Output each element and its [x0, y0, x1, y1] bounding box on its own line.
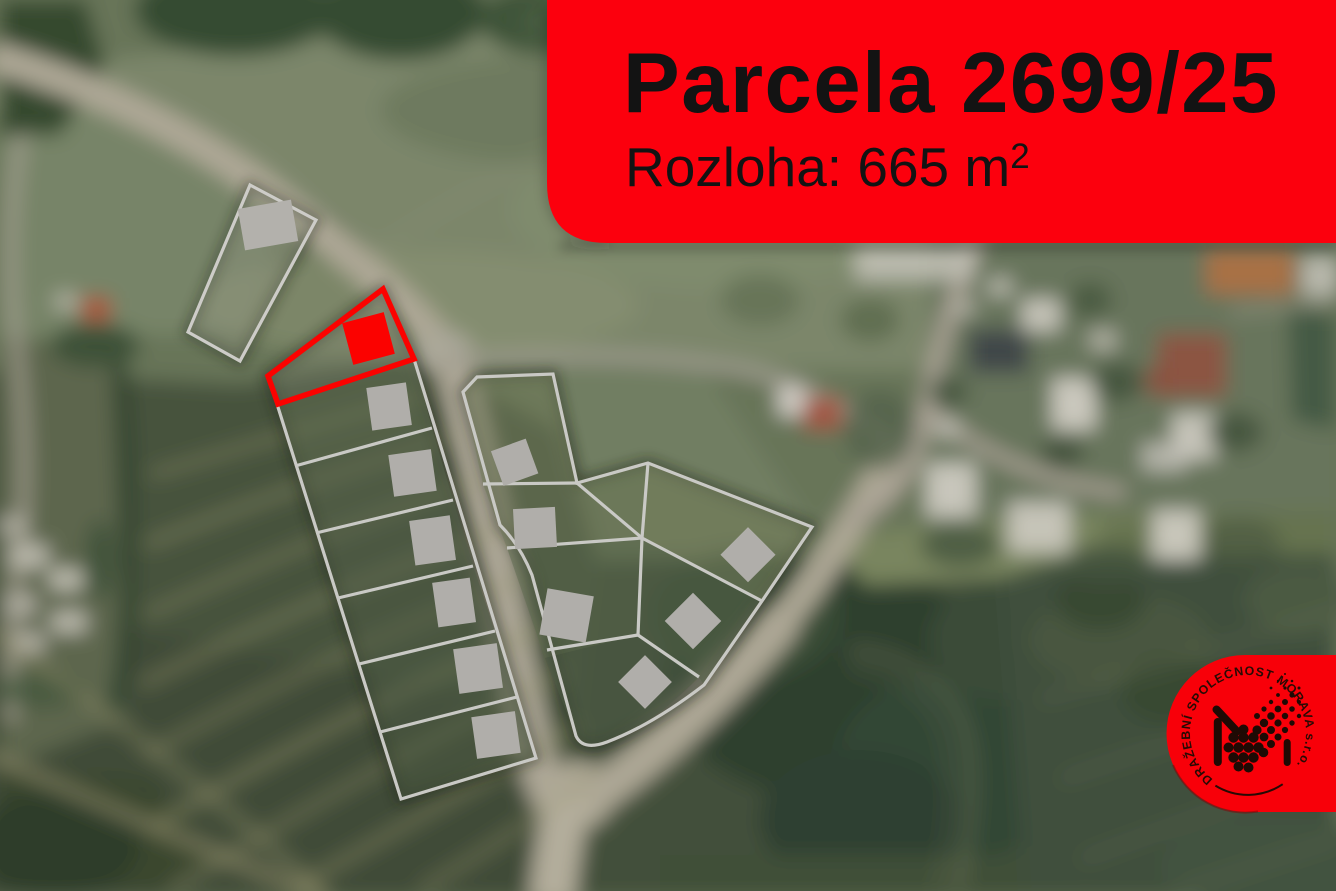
svg-text:Rozloha: 665 m2: Rozloha: 665 m2 [625, 136, 1030, 198]
svg-text:Parcela 2699/25: Parcela 2699/25 [623, 36, 1279, 131]
